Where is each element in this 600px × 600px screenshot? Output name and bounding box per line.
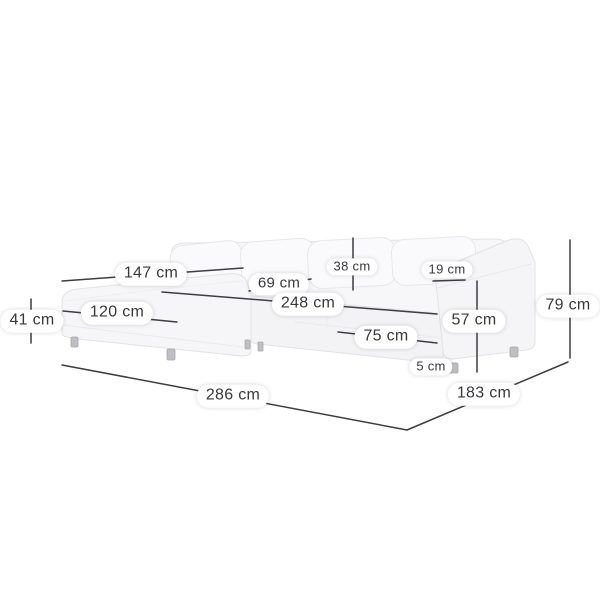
dim-label-69cm: 69 cm xyxy=(249,273,309,295)
leg-middle-a xyxy=(245,340,250,349)
dim-label-57cm: 57 cm xyxy=(442,310,505,333)
dim-label-38cm: 38 cm xyxy=(327,258,378,275)
leg-middle-b xyxy=(258,342,263,351)
dim-label-19cm: 19 cm xyxy=(422,261,473,278)
dim-label-5cm: 5 cm xyxy=(409,358,452,375)
dim-label-120cm: 120 cm xyxy=(81,302,153,325)
leg-chaise-front xyxy=(71,337,78,347)
dim-label-183cm: 183 cm xyxy=(448,383,520,406)
leg-arm-right xyxy=(510,347,518,357)
leg-chaise-side xyxy=(167,349,175,360)
dim-label-79cm: 79 cm xyxy=(536,295,599,318)
dim-label-41cm: 41 cm xyxy=(0,310,63,333)
sofa-dimension-diagram: 147 cm 69 cm 248 cm 38 cm 19 cm 120 cm 4… xyxy=(0,0,600,600)
dim-label-286cm: 286 cm xyxy=(197,385,269,408)
dim-label-248cm: 248 cm xyxy=(272,293,344,316)
dim-label-147cm: 147 cm xyxy=(115,263,187,286)
dim-label-75cm: 75 cm xyxy=(354,326,417,349)
dimension-line-19cm xyxy=(433,280,465,281)
